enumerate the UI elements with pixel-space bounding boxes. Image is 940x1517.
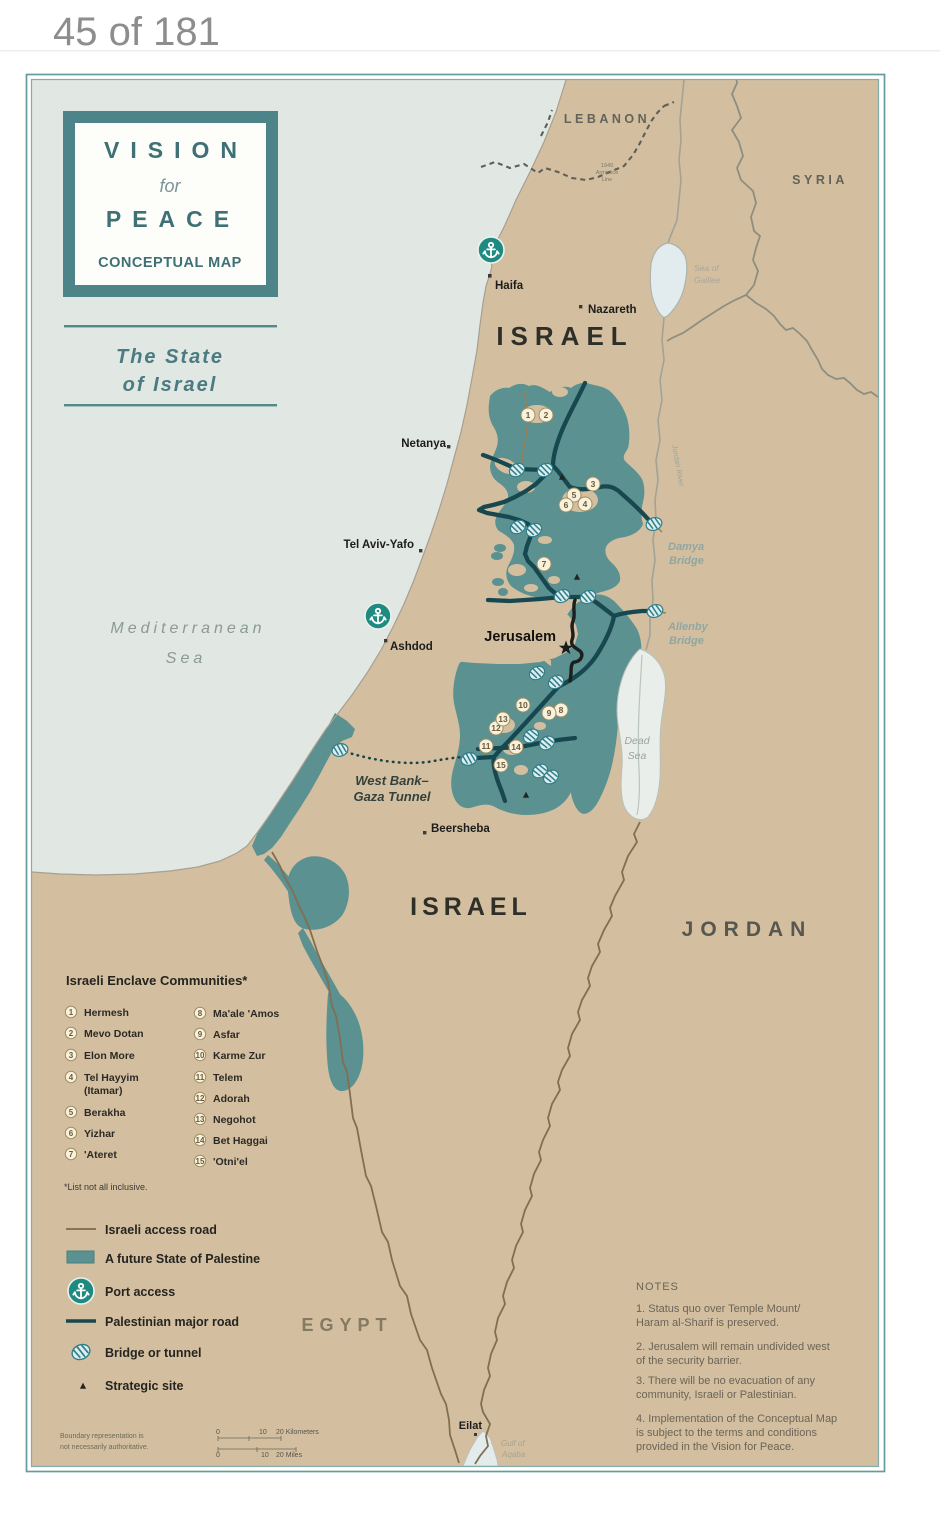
svg-text:Strategic site: Strategic site — [105, 1379, 184, 1393]
svg-text:Berakha: Berakha — [84, 1107, 126, 1119]
svg-text:10: 10 — [518, 700, 528, 710]
svg-text:4. Implementation of the Conce: 4. Implementation of the Conceptual Map — [636, 1413, 837, 1425]
svg-text:Mevo Dotan: Mevo Dotan — [84, 1028, 144, 1040]
svg-text:10: 10 — [259, 1429, 267, 1436]
svg-text:9: 9 — [198, 1030, 203, 1039]
svg-text:NOTES: NOTES — [636, 1281, 679, 1293]
svg-text:Gulf of: Gulf of — [501, 1439, 525, 1448]
svg-text:Aqaba: Aqaba — [501, 1450, 526, 1459]
svg-text:8: 8 — [559, 705, 564, 715]
svg-text:8: 8 — [198, 1009, 203, 1018]
svg-text:9: 9 — [547, 708, 552, 718]
svg-text:2. Jerusalem will remain undiv: 2. Jerusalem will remain undivided west — [636, 1341, 830, 1353]
svg-text:13: 13 — [498, 714, 508, 724]
svg-text:JORDAN: JORDAN — [682, 918, 813, 941]
svg-text:Haifa: Haifa — [495, 280, 524, 292]
svg-text:Eilat: Eilat — [459, 1420, 483, 1432]
svg-text:10: 10 — [196, 1051, 205, 1060]
svg-text:Boundary representation is: Boundary representation is — [60, 1433, 144, 1440]
svg-text:Israeli access road: Israeli access road — [105, 1223, 217, 1237]
svg-text:Haram al-Sharif is preserved.: Haram al-Sharif is preserved. — [636, 1317, 779, 1329]
svg-text:'Otni'el: 'Otni'el — [213, 1156, 248, 1168]
svg-text:Ashdod: Ashdod — [390, 641, 433, 653]
svg-text:LEBANON: LEBANON — [564, 112, 650, 126]
svg-text:Karme Zur: Karme Zur — [213, 1050, 266, 1062]
svg-text:Israeli Enclave Communities*: Israeli Enclave Communities* — [66, 973, 248, 988]
svg-text:Jerusalem: Jerusalem — [484, 629, 556, 645]
svg-text:Allenby: Allenby — [667, 621, 709, 633]
svg-text:20 Miles: 20 Miles — [276, 1452, 303, 1459]
svg-text:Nazareth: Nazareth — [588, 304, 637, 316]
svg-text:West Bank–: West Bank– — [355, 773, 428, 788]
svg-text:Tel Aviv-Yafo: Tel Aviv-Yafo — [343, 539, 414, 551]
svg-text:community, Israeli or Palestin: community, Israeli or Palestinian. — [636, 1389, 797, 1401]
svg-text:(Itamar): (Itamar) — [84, 1085, 123, 1097]
svg-text:Asfar: Asfar — [213, 1029, 240, 1041]
svg-text:not necessarily authoritative.: not necessarily authoritative. — [60, 1444, 149, 1451]
svg-text:provided in the Vision for Pea: provided in the Vision for Peace. — [636, 1441, 794, 1453]
svg-text:Bridge or tunnel: Bridge or tunnel — [105, 1346, 202, 1360]
svg-text:Mediterranean: Mediterranean — [110, 620, 265, 637]
svg-text:14: 14 — [511, 742, 521, 752]
svg-text:Line: Line — [602, 177, 612, 183]
svg-text:Adorah: Adorah — [213, 1093, 250, 1105]
svg-text:Damya: Damya — [668, 541, 704, 553]
svg-text:A future State of Palestine: A future State of Palestine — [105, 1252, 260, 1266]
svg-text:Bridge: Bridge — [669, 635, 704, 647]
svg-text:0: 0 — [216, 1452, 220, 1459]
svg-text:3: 3 — [591, 479, 596, 489]
svg-text:Negohot: Negohot — [213, 1114, 256, 1126]
svg-text:PEACE: PEACE — [106, 206, 240, 232]
svg-text:VISION: VISION — [104, 137, 248, 163]
svg-text:3. There will be no evacuation: 3. There will be no evacuation of any — [636, 1375, 815, 1387]
svg-text:2: 2 — [544, 410, 549, 420]
svg-text:7: 7 — [69, 1150, 74, 1159]
svg-text:EGYPT: EGYPT — [301, 1315, 392, 1335]
svg-text:The State: The State — [116, 346, 224, 368]
svg-text:Galilee: Galilee — [694, 275, 721, 285]
svg-text:ISRAEL: ISRAEL — [496, 321, 633, 351]
svg-text:Armistice: Armistice — [596, 170, 619, 176]
svg-text:15: 15 — [196, 1157, 205, 1166]
svg-text:10: 10 — [261, 1452, 269, 1459]
svg-text:6: 6 — [564, 500, 569, 510]
svg-text:Netanya: Netanya — [401, 438, 446, 450]
svg-text:Ma'ale 'Amos: Ma'ale 'Amos — [213, 1008, 279, 1020]
svg-text:'Ateret: 'Ateret — [84, 1149, 117, 1161]
svg-text:11: 11 — [482, 741, 491, 751]
svg-text:7: 7 — [542, 559, 547, 569]
svg-text:5: 5 — [572, 490, 577, 500]
svg-text:Beersheba: Beersheba — [431, 823, 490, 835]
svg-text:ISRAEL: ISRAEL — [410, 893, 532, 921]
svg-text:0: 0 — [216, 1429, 220, 1436]
svg-text:4: 4 — [69, 1073, 74, 1082]
svg-text:Sea: Sea — [628, 750, 647, 762]
svg-text:for: for — [159, 176, 181, 196]
svg-text:Sea: Sea — [166, 650, 206, 667]
svg-text:4: 4 — [583, 499, 588, 509]
svg-text:Telem: Telem — [213, 1072, 243, 1084]
svg-text:CONCEPTUAL MAP: CONCEPTUAL MAP — [98, 255, 242, 271]
svg-text:Elon More: Elon More — [84, 1050, 135, 1062]
svg-text:Sea of: Sea of — [694, 263, 720, 273]
svg-text:2: 2 — [69, 1029, 74, 1038]
svg-text:Hermesh: Hermesh — [84, 1007, 129, 1019]
svg-text:of the security barrier.: of the security barrier. — [636, 1355, 742, 1367]
svg-text:of Israel: of Israel — [123, 374, 218, 396]
svg-text:6: 6 — [69, 1129, 74, 1138]
svg-text:Palestinian major road: Palestinian major road — [105, 1315, 239, 1329]
svg-text:is subject to the terms and co: is subject to the terms and conditions — [636, 1427, 817, 1439]
svg-text:Gaza Tunnel: Gaza Tunnel — [353, 789, 430, 804]
svg-text:Tel Hayyim: Tel Hayyim — [84, 1072, 139, 1084]
svg-text:Port access: Port access — [105, 1285, 175, 1299]
svg-text:13: 13 — [196, 1115, 205, 1124]
svg-text:5: 5 — [69, 1108, 74, 1117]
svg-text:12: 12 — [196, 1094, 205, 1103]
svg-text:1: 1 — [526, 410, 531, 420]
svg-text:1: 1 — [69, 1008, 74, 1017]
svg-text:*List not all inclusive.: *List not all inclusive. — [64, 1182, 148, 1192]
svg-text:Yizhar: Yizhar — [84, 1128, 115, 1140]
svg-text:15: 15 — [496, 760, 506, 770]
svg-text:Bridge: Bridge — [669, 555, 704, 567]
svg-text:1949: 1949 — [601, 163, 613, 169]
svg-text:Bet Haggai: Bet Haggai — [213, 1135, 268, 1147]
svg-text:Dead: Dead — [624, 735, 650, 747]
svg-text:45 of 181: 45 of 181 — [53, 10, 220, 54]
svg-text:20 Kilometers: 20 Kilometers — [276, 1429, 319, 1436]
svg-text:11: 11 — [196, 1073, 205, 1082]
svg-text:3: 3 — [69, 1051, 74, 1060]
svg-text:14: 14 — [196, 1136, 205, 1145]
svg-text:SYRIA: SYRIA — [792, 173, 848, 187]
svg-text:1. Status quo over Temple Moun: 1. Status quo over Temple Mount/ — [636, 1303, 801, 1315]
